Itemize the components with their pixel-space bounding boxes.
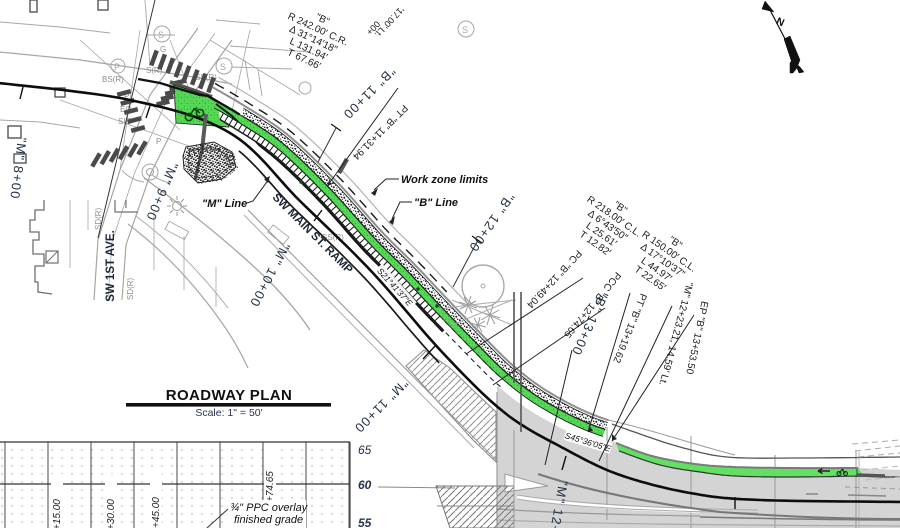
svg-text:S: S [158, 30, 164, 40]
svg-text:Work zone limits: Work zone limits [401, 174, 488, 186]
svg-text:¾" PPC overlay: ¾" PPC overlay [230, 502, 309, 514]
svg-text:"B" Line: "B" Line [414, 197, 458, 209]
svg-text:SW 1ST AVE.: SW 1ST AVE. [105, 230, 117, 302]
svg-text:+74.65: +74.65 [265, 471, 276, 502]
svg-text:S: S [220, 62, 226, 72]
svg-text:S: S [462, 25, 468, 35]
svg-text:65: 65 [358, 443, 372, 457]
svg-text:55: 55 [358, 516, 372, 528]
svg-text:+30.00: +30.00 [106, 499, 117, 528]
svg-text:ROADWAY PLAN: ROADWAY PLAN [166, 387, 293, 404]
svg-text:Scale: 1" = 50': Scale: 1" = 50' [195, 407, 262, 419]
svg-text:G: G [160, 45, 166, 54]
svg-text:SD(R): SD(R) [94, 207, 103, 230]
svg-text:+15.00: +15.00 [52, 499, 63, 528]
svg-text:60: 60 [358, 478, 372, 492]
svg-text:finished grade: finished grade [234, 514, 303, 526]
svg-text:+45.00: +45.00 [151, 497, 162, 528]
svg-text:P: P [114, 62, 120, 72]
svg-text:P: P [156, 137, 161, 146]
svg-text:"M" Line: "M" Line [202, 198, 247, 210]
svg-text:SD(R): SD(R) [126, 277, 135, 300]
svg-text:BS(R): BS(R) [102, 75, 124, 84]
